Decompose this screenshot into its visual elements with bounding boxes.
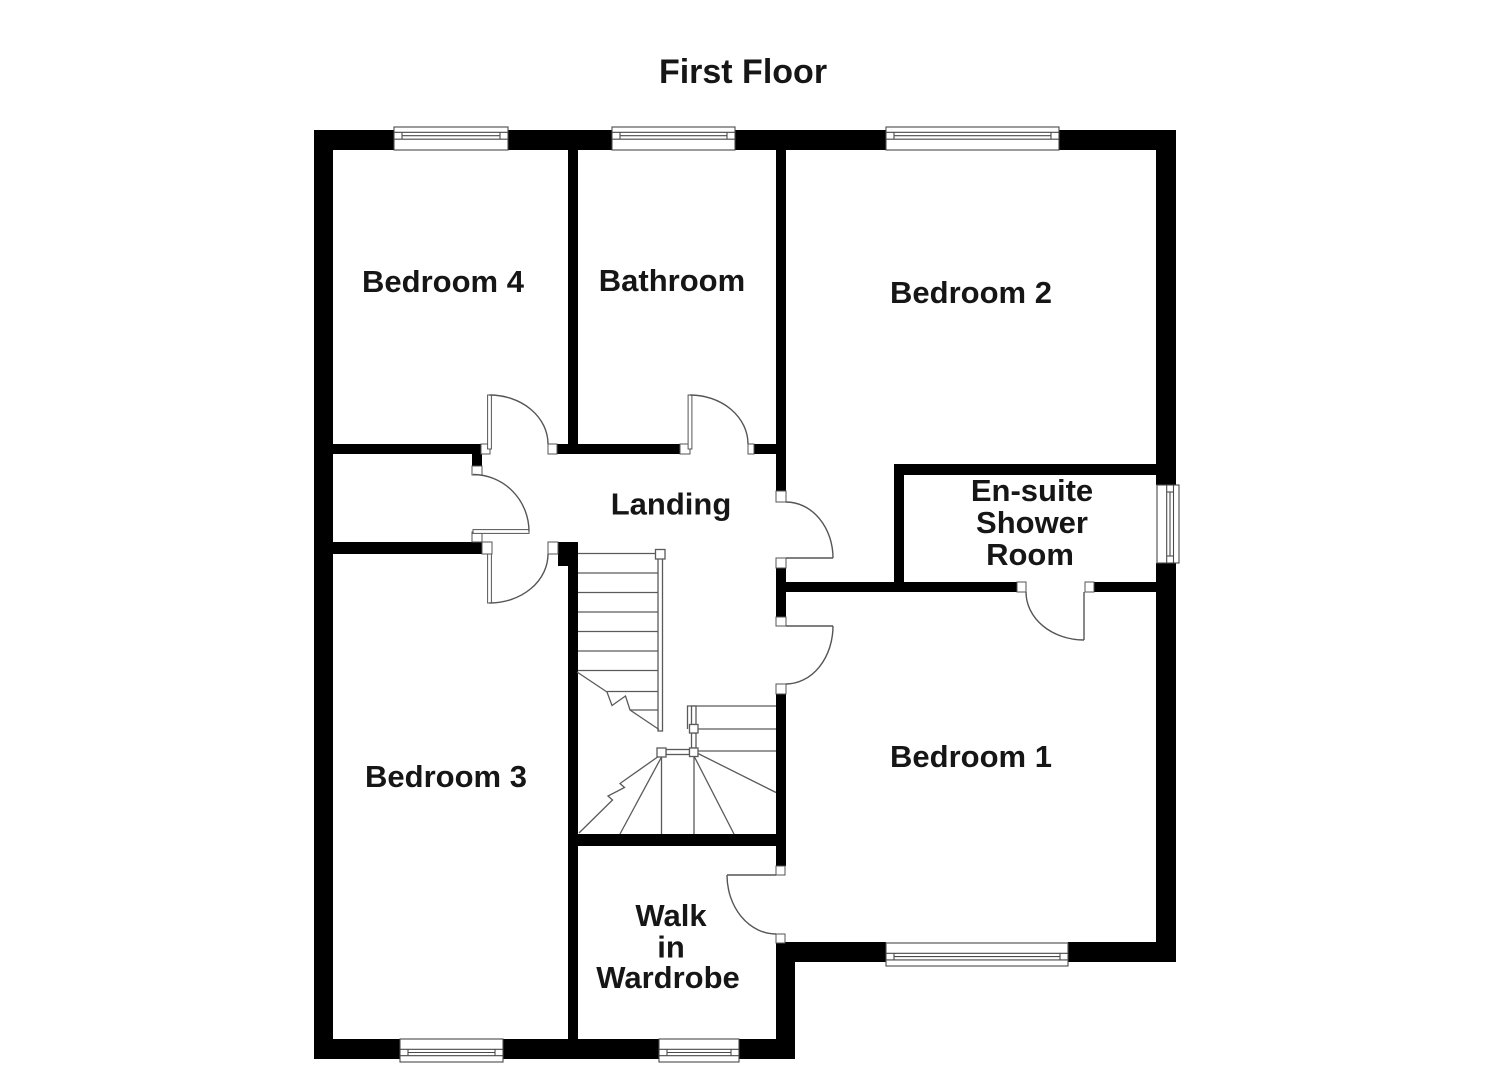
- svg-text:Landing: Landing: [611, 487, 732, 522]
- svg-text:Walk: Walk: [635, 898, 707, 933]
- svg-text:Bedroom 4: Bedroom 4: [362, 264, 525, 299]
- svg-text:Bathroom: Bathroom: [599, 263, 745, 298]
- svg-text:Wardrobe: Wardrobe: [596, 960, 740, 995]
- svg-text:Bedroom 1: Bedroom 1: [890, 739, 1052, 774]
- svg-text:En-suite: En-suite: [971, 473, 1093, 508]
- svg-text:Shower: Shower: [976, 505, 1088, 540]
- svg-text:Room: Room: [986, 537, 1074, 572]
- svg-text:First Floor: First Floor: [659, 53, 827, 91]
- svg-text:Bedroom 3: Bedroom 3: [365, 759, 527, 794]
- svg-text:Bedroom 2: Bedroom 2: [890, 275, 1052, 310]
